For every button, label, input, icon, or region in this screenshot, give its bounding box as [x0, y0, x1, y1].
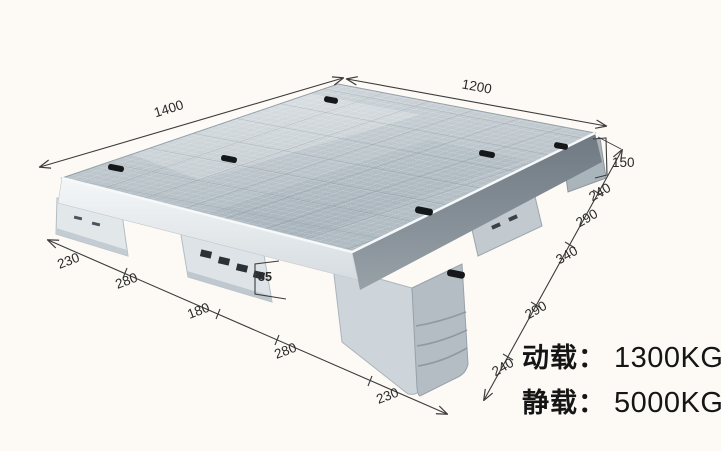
dim-label-bottom-2: 180: [185, 300, 211, 322]
dim-label-height: 150: [612, 155, 635, 170]
dim-label-fork-height: 85: [258, 270, 272, 284]
static-load-value: 5000KG: [614, 387, 721, 420]
pallet-corner-foot: [333, 264, 468, 396]
dim-label-right-2: 340: [553, 243, 580, 267]
dynamic-load-value: 1300KG: [614, 342, 721, 375]
dim-label-bottom-1: 280: [113, 270, 139, 292]
static-load-label: 静载：: [522, 381, 606, 420]
dim-label-width: 1200: [461, 76, 493, 96]
dim-label-right-3: 290: [522, 298, 549, 322]
dim-label-bottom-4: 230: [374, 385, 400, 407]
dynamic-load-label: 动载：: [522, 336, 606, 375]
dynamic-load-text: 动载： 1300KG: [522, 336, 721, 375]
static-load-text: 静载： 5000KG: [522, 381, 721, 420]
dim-label-right-1: 290: [573, 206, 600, 230]
pallet-spec-image: 1400 1200 150 85 240 290 340 290 240 230…: [0, 0, 721, 451]
dim-label-length: 1400: [152, 97, 185, 120]
dim-label-right-4: 240: [489, 355, 516, 379]
